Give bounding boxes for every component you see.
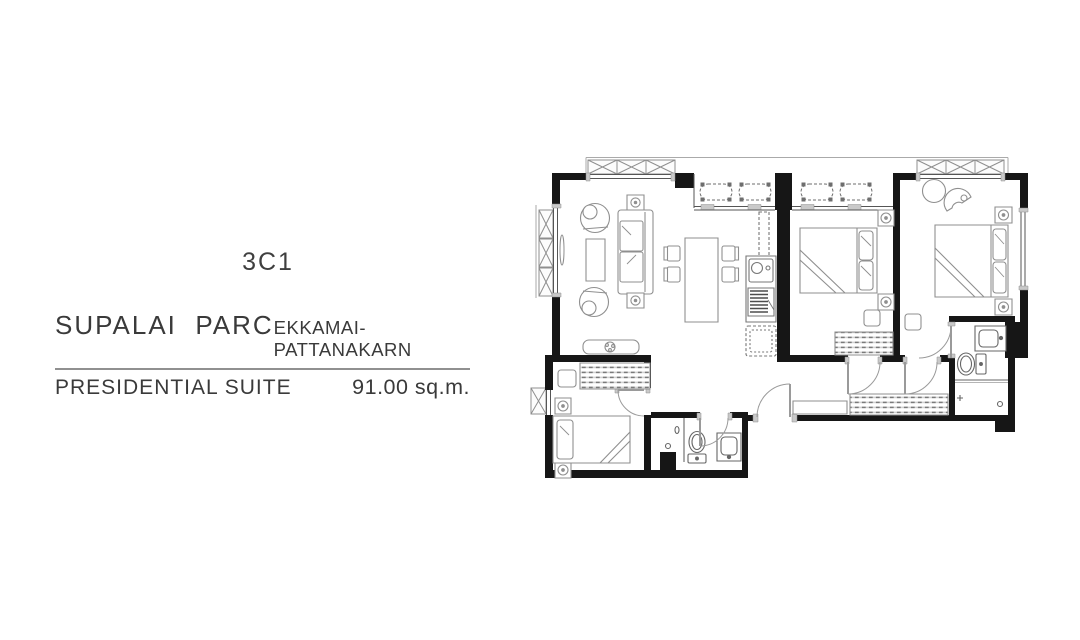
door-swing-icon [848, 362, 880, 394]
nightstand-lamp-icon [627, 293, 644, 308]
ac-condenser-unit-icon [617, 160, 646, 174]
desk-icon [558, 370, 576, 387]
floorplan-sheet: 3C1 SUPALAI PARC EKKAMAI-PATTANAKARN PRE… [0, 0, 1080, 640]
armchair-icon [581, 204, 610, 233]
walk-in-closet-icon [850, 394, 948, 415]
wardrobe-icon [580, 363, 650, 389]
ac-condenser-unit-icon [700, 183, 732, 201]
wardrobe-icon [835, 332, 893, 355]
kitchen-sink-icon [749, 259, 773, 282]
ac-condenser-unit-icon [539, 239, 553, 267]
ac-condenser-unit-icon [646, 160, 675, 174]
refrigerator-icon [746, 326, 776, 356]
ac-condenser-unit-icon [801, 183, 833, 201]
ac-condenser-unit-icon [840, 183, 872, 201]
nightstand-lamp-icon [995, 207, 1012, 223]
round-table-icon [923, 180, 946, 203]
dining-chair-icon [722, 246, 739, 261]
shoe-cabinet [793, 401, 847, 414]
dining-chair-icon [664, 246, 680, 261]
door-swing-icon [618, 390, 644, 416]
nightstand-lamp-icon [995, 299, 1012, 315]
window-icon [588, 175, 675, 179]
coffee-table-icon [586, 239, 605, 281]
window-icon [554, 207, 558, 295]
ac-condenser-unit-icon [531, 388, 546, 414]
armchair-icon [580, 288, 609, 317]
master-bedroom [905, 180, 1012, 331]
toilet-icon [958, 353, 987, 375]
ac-condenser-unit-icon [588, 160, 617, 174]
single-bed-icon [553, 416, 630, 463]
lounge-chair-icon [944, 189, 971, 211]
ac-condenser-unit-icon [975, 160, 1004, 174]
double-bed-icon [800, 228, 877, 293]
ac-condenser-unit-icon [539, 210, 553, 238]
window-icon [918, 175, 1005, 179]
bathroom-2 [666, 418, 742, 463]
walk-in-closet [793, 394, 948, 415]
entrance-door-swing-icon [757, 384, 790, 417]
vanity-sink-icon [975, 326, 1006, 351]
stool-icon [905, 314, 921, 330]
nightstand-lamp-icon [627, 195, 644, 210]
ac-condenser-unit-icon [946, 160, 975, 174]
stove-icon [748, 288, 774, 316]
dining-table-icon [685, 238, 718, 322]
double-bed-icon [935, 225, 1008, 297]
nightstand-lamp-icon [878, 210, 894, 226]
kitchen [746, 212, 776, 356]
door-swing-icon [919, 326, 951, 358]
floorplan-drawing [0, 0, 1080, 640]
stool-icon [864, 310, 880, 326]
nightstand-lamp-icon [555, 463, 571, 478]
ac-condenser-unit-icon [539, 268, 553, 296]
shower-icon [955, 380, 1008, 407]
ac-condenser-unit-icon [917, 160, 946, 174]
nightstand-lamp-icon [555, 398, 571, 414]
dining-chair-icon [664, 267, 680, 282]
tv-console-icon [583, 340, 639, 354]
bedroom-3 [553, 363, 650, 478]
door-swing-icon [905, 362, 937, 394]
dining-chair-icon [722, 267, 739, 282]
nightstand-lamp-icon [878, 294, 894, 310]
window-handle [560, 235, 564, 265]
sofa-icon [618, 210, 653, 294]
ac-condenser-unit-icon [739, 183, 771, 201]
toilet-icon [688, 432, 706, 464]
window-icon [1021, 210, 1025, 288]
bedroom-2 [800, 210, 894, 355]
window-icon [547, 390, 551, 415]
living-room [580, 195, 739, 354]
plant-icon [605, 342, 615, 352]
